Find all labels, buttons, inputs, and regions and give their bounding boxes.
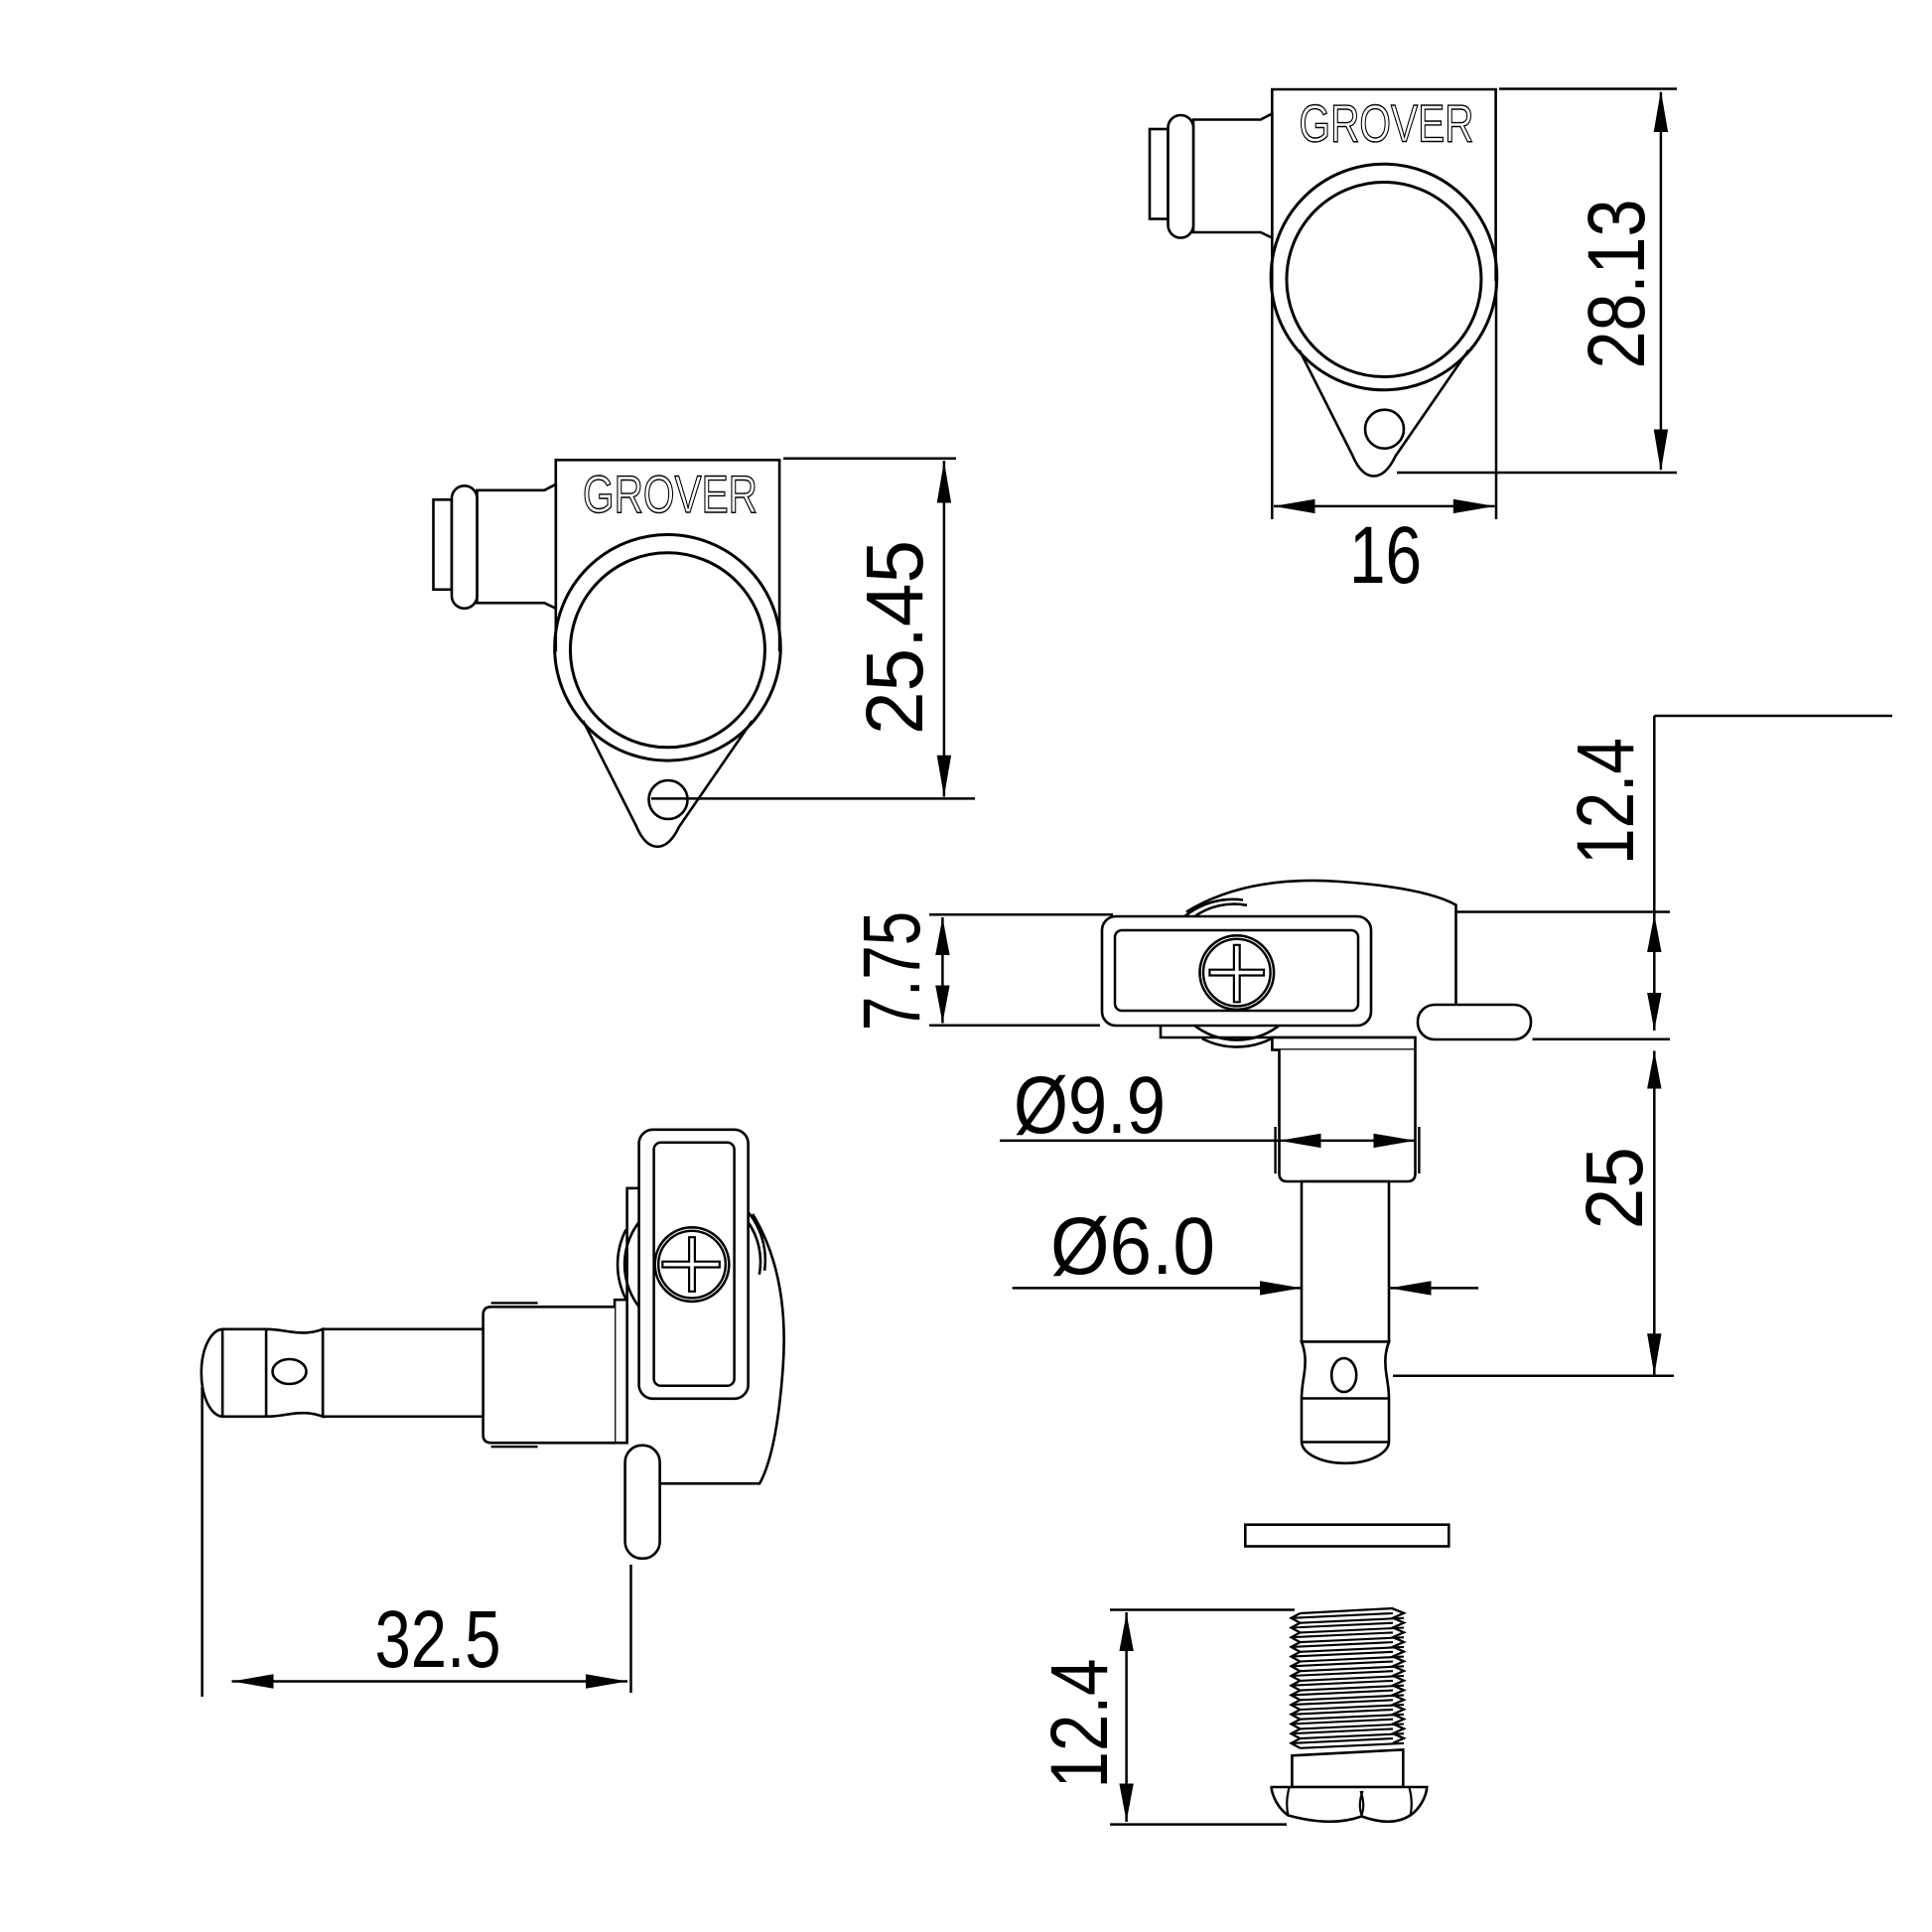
svg-text:25: 25 — [1570, 1147, 1660, 1229]
svg-text:25.45: 25.45 — [850, 540, 940, 735]
svg-text:28.13: 28.13 — [1572, 200, 1662, 369]
svg-text:7.75: 7.75 — [847, 911, 937, 1031]
svg-text:Ø6.0: Ø6.0 — [1050, 1201, 1215, 1292]
svg-text:32.5: 32.5 — [375, 1594, 501, 1685]
svg-text:16: 16 — [1349, 510, 1422, 601]
svg-text:Ø9.9: Ø9.9 — [1014, 1060, 1166, 1151]
svg-text:12.4: 12.4 — [1035, 1659, 1125, 1789]
svg-text:12.4: 12.4 — [1561, 738, 1651, 865]
